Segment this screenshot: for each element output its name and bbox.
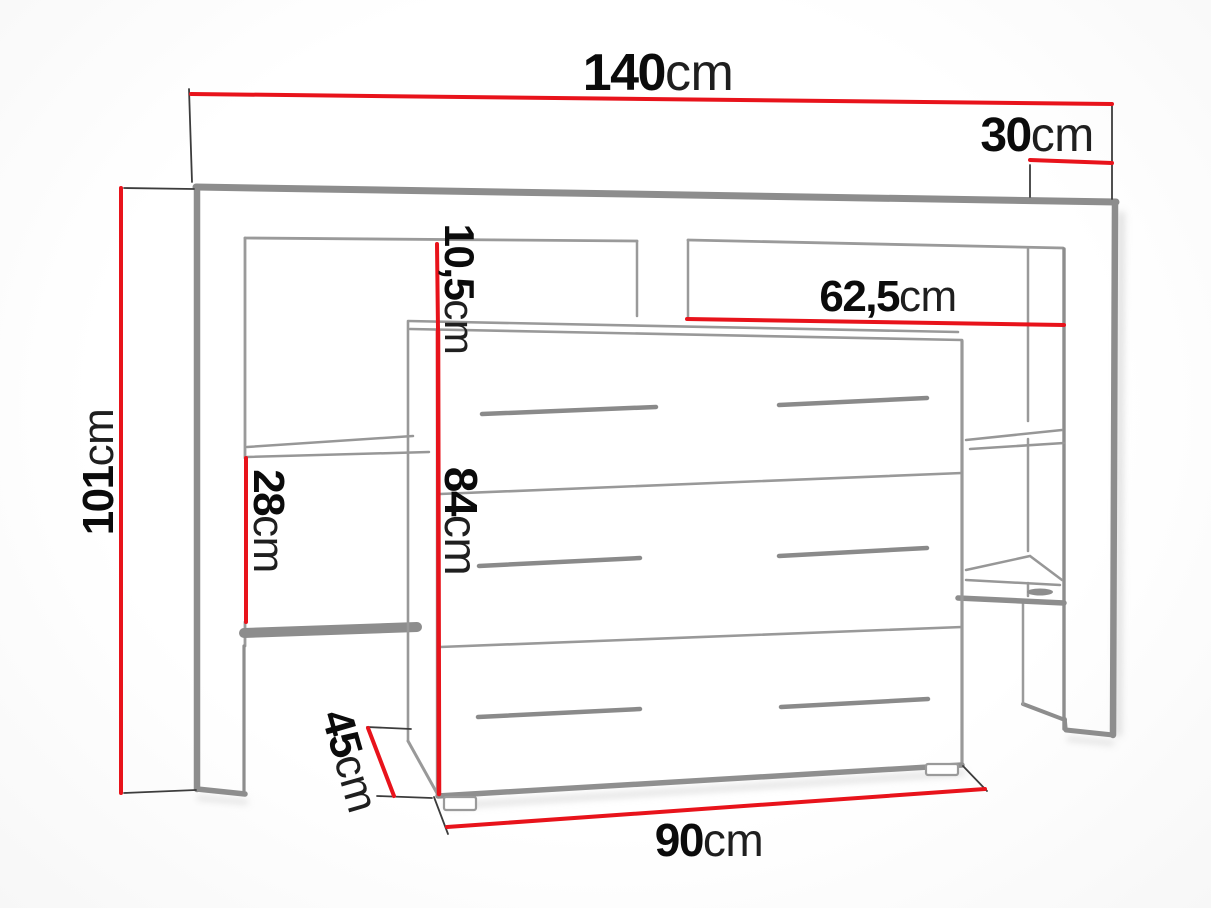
dimension-unit: cm: [438, 515, 484, 575]
dimension-label-dresser-width: 90cm: [655, 817, 764, 863]
drawer-handles: [478, 398, 928, 717]
dimension-unit: cm: [703, 817, 763, 863]
dimension-value: 90: [655, 817, 703, 863]
dimension-label-total-width: 140cm: [583, 47, 734, 99]
dimension-value: 30: [980, 112, 1030, 160]
dimension-unit: cm: [438, 299, 480, 354]
dimension-label-total-height: 101cm: [77, 409, 121, 536]
dimension-label-shelf-opening-height: 28cm: [246, 469, 290, 573]
dimension-label-dresser-height: 84cm: [438, 467, 484, 576]
frame-outline: [196, 187, 1116, 794]
shelves: [244, 430, 1064, 633]
dimension-unit: cm: [1031, 112, 1094, 160]
dimension-value: 10,5: [438, 224, 480, 300]
dimension-unit: cm: [246, 515, 290, 573]
dimension-value: 140: [583, 47, 665, 99]
dimension-label-top-depth: 30cm: [980, 112, 1093, 160]
dimension-unit: cm: [899, 275, 957, 319]
dimension-value: 84: [438, 467, 484, 515]
dimension-unit: cm: [665, 47, 733, 99]
dimension-value: 62,5: [819, 275, 899, 319]
dimension-label-inner-width: 62,5cm: [819, 275, 956, 319]
dimension-value: 101: [77, 466, 121, 535]
dimension-label-top-gap-height: 10,5cm: [438, 224, 480, 355]
dimension-diagram: 140cm 30cm 101cm 10,5cm 62,5cm 28cm 84cm…: [0, 0, 1211, 908]
dimension-unit: cm: [77, 409, 121, 467]
dimension-value: 28: [246, 469, 290, 515]
